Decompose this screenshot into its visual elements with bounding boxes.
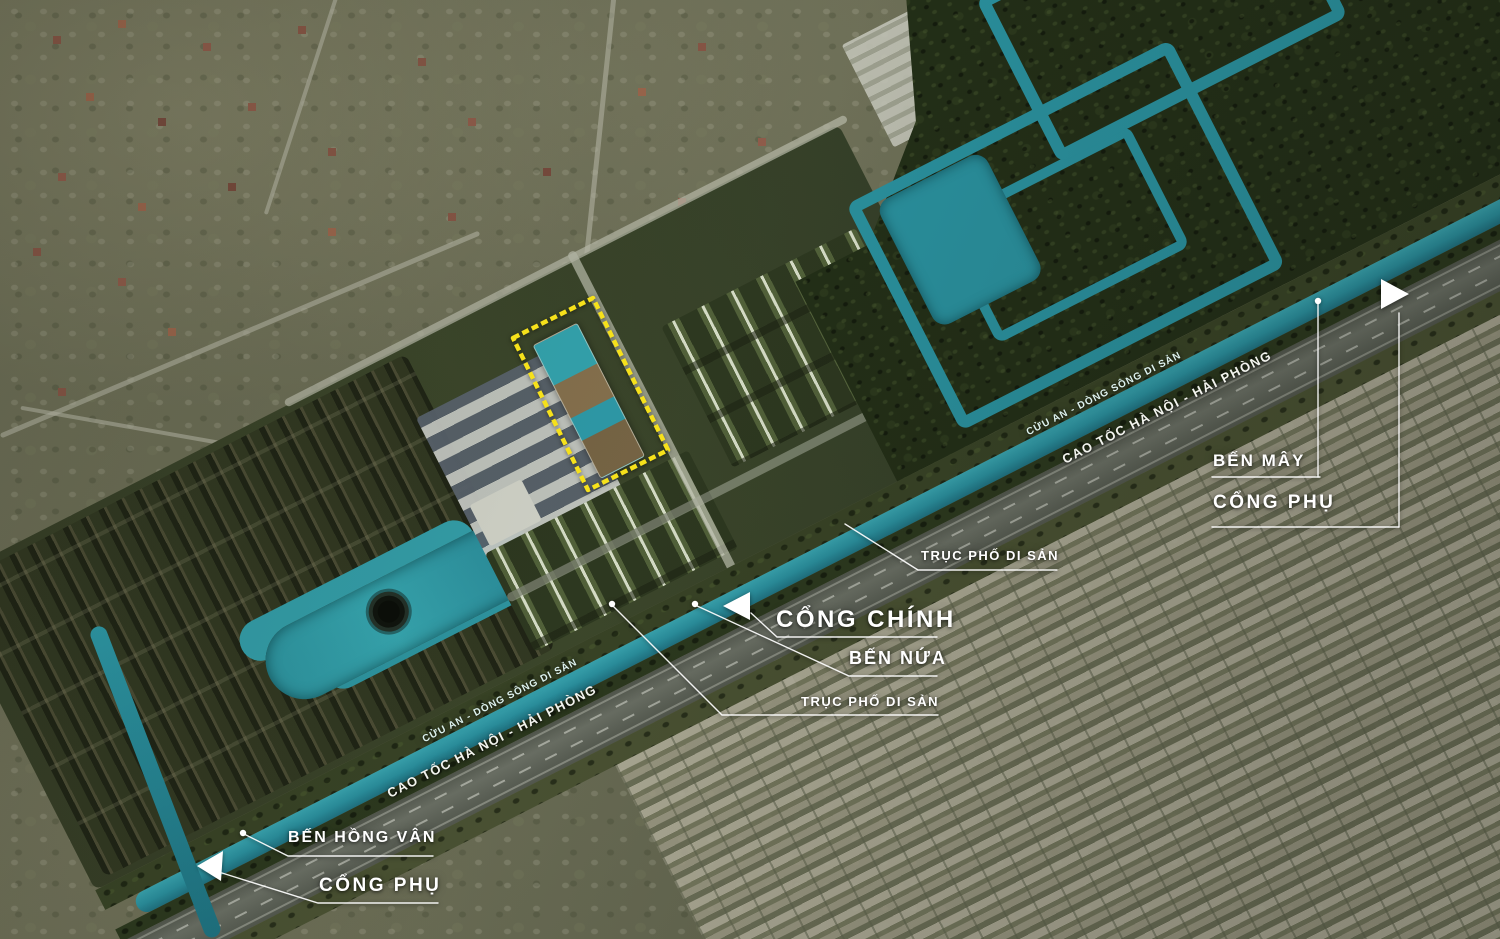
map-point-dot bbox=[609, 601, 615, 607]
label-heritage-street-south: TRỤC PHỐ DI SẢN bbox=[801, 694, 939, 709]
label-main-gate: CỔNG CHÍNH bbox=[776, 606, 956, 634]
label-ben-nua: BẾN NỨA bbox=[849, 648, 947, 669]
side-gate-arrow-left bbox=[197, 851, 223, 881]
label-ben-hong-van: BẾN HỒNG VÂN bbox=[288, 829, 436, 847]
highlight-box bbox=[513, 298, 668, 490]
map-point-dot bbox=[1315, 298, 1321, 304]
map-point-dot bbox=[240, 830, 246, 836]
label-side-gate-right: CỔNG PHỤ bbox=[1213, 492, 1335, 514]
map-point-dot bbox=[692, 601, 698, 607]
masterplan-aerial-map: CỔNG CHÍNH BẾN NỨA TRỤC PHỐ DI SẢN TRỤC … bbox=[0, 0, 1500, 939]
main-gate-arrow bbox=[723, 592, 750, 620]
label-heritage-street-north: TRỤC PHỐ DI SẢN bbox=[921, 548, 1059, 563]
label-side-gate-left: CỔNG PHỤ bbox=[319, 875, 441, 897]
side-gate-arrow-right bbox=[1381, 279, 1409, 309]
leader-line-heritage-street-north bbox=[845, 524, 1057, 570]
label-ben-may: BẾN MÂY bbox=[1213, 451, 1305, 471]
